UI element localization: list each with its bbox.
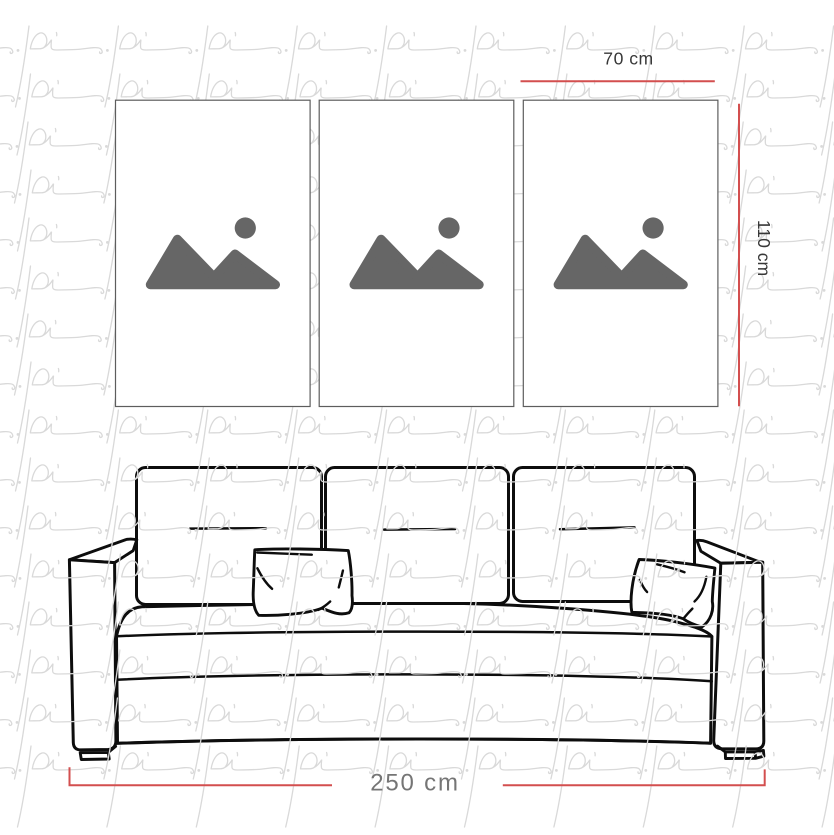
svg-text:250 cm: 250 cm [370, 770, 460, 797]
svg-text:110 cm: 110 cm [754, 220, 774, 276]
svg-text:70 cm: 70 cm [603, 49, 653, 69]
